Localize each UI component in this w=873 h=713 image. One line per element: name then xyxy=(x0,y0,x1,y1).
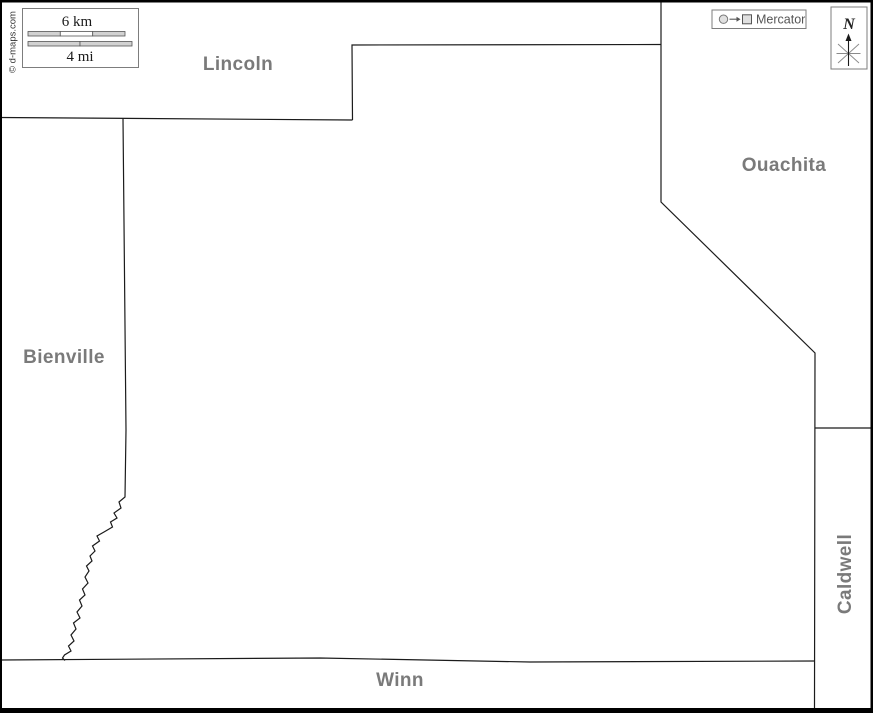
square-projection-icon xyxy=(743,15,752,24)
border-top xyxy=(0,0,873,3)
scale-km-label: 6 km xyxy=(62,14,93,30)
copyright-text: © d-maps.com xyxy=(8,11,19,73)
scale-bar-km-seg2 xyxy=(60,32,92,37)
border-left xyxy=(0,0,2,713)
compass-north-label: N xyxy=(842,16,856,33)
label-lincoln: Lincoln xyxy=(203,54,273,75)
scale-bar-km-seg1 xyxy=(28,32,60,37)
map-background xyxy=(0,0,873,713)
parish-map-svg: Lincoln Ouachita Bienville Caldwell Winn… xyxy=(0,0,873,713)
scale-mi-label: 4 mi xyxy=(66,49,93,65)
projection-box: Mercator xyxy=(712,10,806,29)
compass-box: N xyxy=(831,7,867,69)
label-ouachita: Ouachita xyxy=(742,155,827,176)
scale-bar-mi-seg2 xyxy=(80,42,132,47)
border-bottom xyxy=(0,708,873,713)
label-winn: Winn xyxy=(376,670,424,691)
projection-label: Mercator xyxy=(756,13,805,27)
scale-box: 6 km 4 mi xyxy=(23,9,139,68)
scale-bar-km-seg3 xyxy=(93,32,125,37)
map-image: Lincoln Ouachita Bienville Caldwell Winn… xyxy=(0,0,873,713)
globe-circle-icon xyxy=(719,15,727,23)
scale-bar-km xyxy=(28,32,125,37)
label-caldwell: Caldwell xyxy=(835,534,856,614)
scale-bar-mi-seg1 xyxy=(28,42,80,47)
scale-bar-mi xyxy=(28,42,132,47)
label-bienville: Bienville xyxy=(23,347,105,368)
